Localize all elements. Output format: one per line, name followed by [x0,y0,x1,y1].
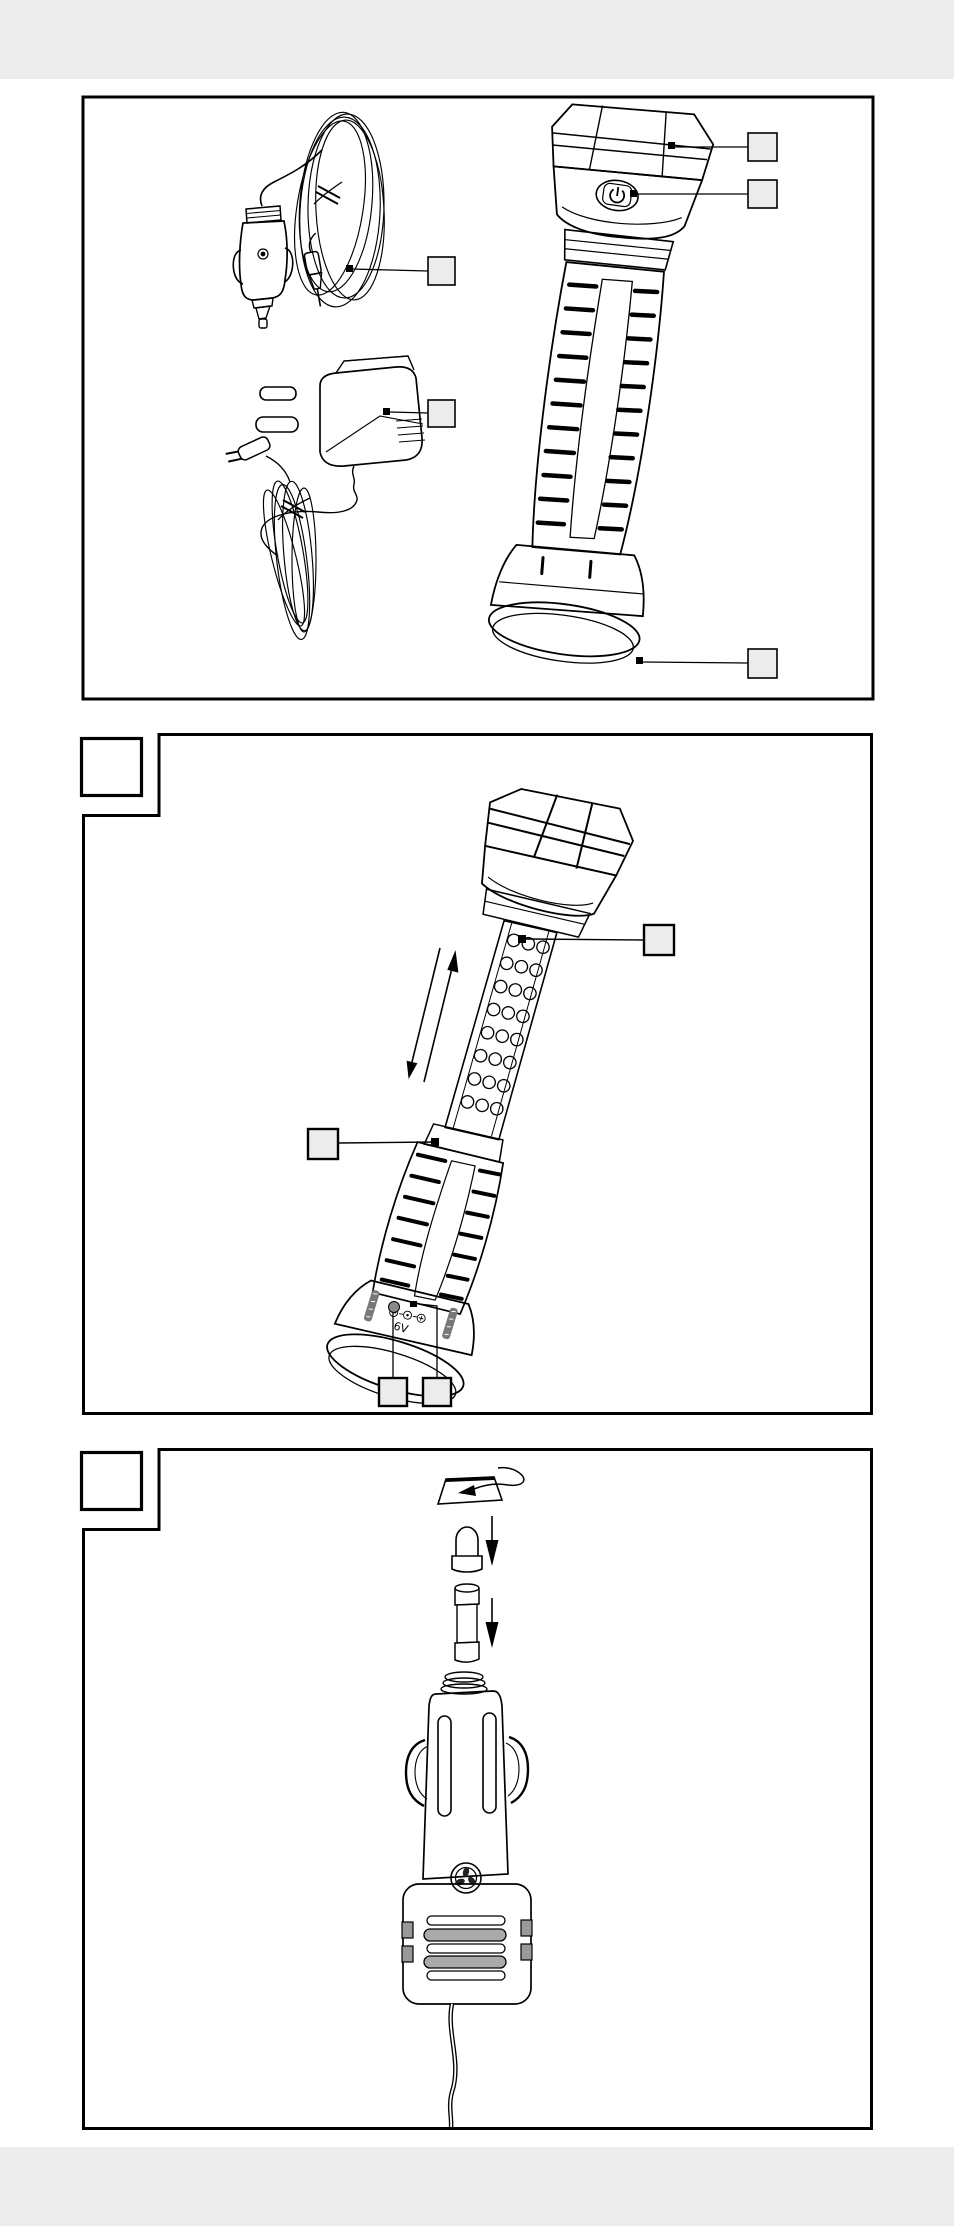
side-clip [402,1946,413,1962]
leader-marker [346,265,353,272]
leader-marker [383,408,390,415]
side-clip [521,1944,532,1960]
callout-box-grip [308,1129,338,1159]
figure-extension-panel: 6V [82,735,872,1418]
figure-fuse-panel [82,1450,872,2129]
callout-box-led-tube [644,925,674,955]
callout-box-socket [379,1378,407,1406]
figure-overview-panel [83,95,873,699]
side-clip [402,1922,413,1938]
callout-box-socket-detail [423,1378,451,1406]
manual-illustration: 6V [0,0,954,2226]
charging-socket [389,1302,400,1313]
leader-marker [668,142,675,149]
callout-box-tail [748,649,777,678]
figure-extension-label-box [82,739,142,796]
leader-marker [431,1138,439,1146]
figure-fuse-label-box [82,1453,142,1510]
leader-marker [630,190,637,197]
callout-box-power-button [748,180,777,208]
manual-page: 6V [0,0,954,2226]
leader-marker [636,657,643,664]
callout-box-car-cable [428,257,455,285]
leader-marker [410,1301,417,1307]
callout-box-head [748,133,777,161]
leader-marker [518,935,526,943]
callout-box-adapter [428,400,455,427]
side-clip [521,1920,532,1936]
